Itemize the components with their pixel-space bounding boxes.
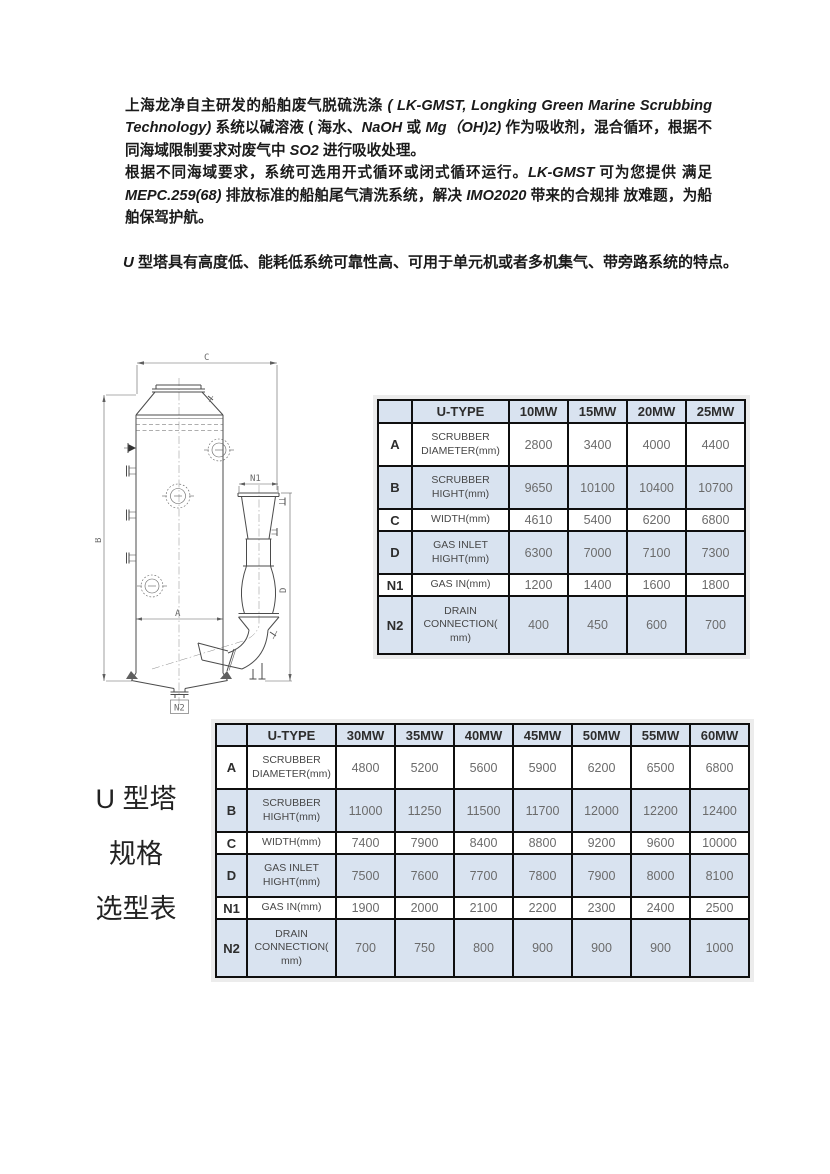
dim-label-a: A — [175, 609, 181, 619]
text-segment: U — [123, 254, 134, 271]
row-label: GAS IN(mm) — [247, 897, 336, 919]
column-header: 35MW — [395, 724, 454, 746]
spec-table-small-wrap: U-TYPE10MW15MW20MW25MWASCRUBBER DIAMETER… — [373, 395, 750, 659]
value-cell: 2000 — [395, 897, 454, 919]
row-key: N1 — [378, 574, 412, 596]
row-label: SCRUBBER HIGHT(mm) — [412, 466, 509, 509]
text-segment: MEPC.259(68) — [125, 188, 222, 204]
scrubber-tower-drawing: C B D N1 A — [95, 338, 340, 718]
dim-label-n2: N2 — [174, 704, 185, 714]
row-key: N2 — [216, 919, 247, 977]
column-header: 10MW — [509, 400, 568, 423]
value-cell: 4610 — [509, 509, 568, 531]
value-cell: 4400 — [686, 423, 745, 466]
value-cell: 11000 — [336, 789, 395, 832]
value-cell: 900 — [631, 919, 690, 977]
side-nozzle-3 — [127, 553, 137, 564]
spec-table-large: U-TYPE30MW35MW40MW45MW50MW55MW60MWASCRUB… — [215, 723, 750, 978]
row-key: N2 — [378, 596, 412, 654]
corner-cell — [216, 724, 247, 746]
value-cell: 900 — [513, 919, 572, 977]
value-cell: 7100 — [627, 531, 686, 574]
value-cell: 600 — [627, 596, 686, 654]
value-cell: 6200 — [627, 509, 686, 531]
row-label: SCRUBBER HIGHT(mm) — [247, 789, 336, 832]
value-cell: 700 — [686, 596, 745, 654]
value-cell: 450 — [568, 596, 627, 654]
value-cell: 800 — [454, 919, 513, 977]
row-key: A — [378, 423, 412, 466]
manhole-upper — [204, 439, 234, 461]
value-cell: 4800 — [336, 746, 395, 789]
value-cell: 8100 — [690, 854, 749, 897]
column-header: 50MW — [572, 724, 631, 746]
value-cell: 1600 — [627, 574, 686, 596]
column-header: 45MW — [513, 724, 572, 746]
row-label: GAS IN(mm) — [412, 574, 509, 596]
value-cell: 12200 — [631, 789, 690, 832]
dim-label-c: C — [204, 353, 209, 363]
text-segment: 进行吸收处理。 — [319, 143, 425, 159]
value-cell: 900 — [572, 919, 631, 977]
value-cell: 7700 — [454, 854, 513, 897]
row-label: SCRUBBER DIAMETER(mm) — [412, 423, 509, 466]
row-label: WIDTH(mm) — [247, 832, 336, 854]
row-key: N1 — [216, 897, 247, 919]
value-cell: 7900 — [572, 854, 631, 897]
paragraph-3: U 型塔具有高度低、能耗低系统可靠性高、可用于单元机或者多机集气、带旁路系统的特… — [123, 252, 763, 274]
value-cell: 2800 — [509, 423, 568, 466]
paragraph-2: 根据不同海域要求，系统可选用开式循环或闭式循环运行。LK-GMST 可为您提供 … — [125, 162, 712, 229]
text-segment: 上海龙净自主研发的船舶废气脱硫洗涤 — [125, 98, 388, 114]
value-cell: 6800 — [686, 509, 745, 531]
row-key: D — [378, 531, 412, 574]
row-label: GAS INLET HIGHT(mm) — [247, 854, 336, 897]
value-cell: 6300 — [509, 531, 568, 574]
row-label: WIDTH(mm) — [412, 509, 509, 531]
text-segment: Mg（OH)2) — [425, 120, 501, 136]
value-cell: 5400 — [568, 509, 627, 531]
value-cell: 10100 — [568, 466, 627, 509]
dim-label-n1: N1 — [250, 474, 261, 484]
spray-nozzle — [128, 444, 136, 452]
text-segment: LK-GMST — [528, 165, 594, 181]
value-cell: 10400 — [627, 466, 686, 509]
value-cell: 7800 — [513, 854, 572, 897]
row-label: SCRUBBER DIAMETER(mm) — [247, 746, 336, 789]
value-cell: 7500 — [336, 854, 395, 897]
value-cell: 7600 — [395, 854, 454, 897]
value-cell: 7000 — [568, 531, 627, 574]
row-key: B — [216, 789, 247, 832]
scrubber-tower-svg: C B D N1 A — [95, 338, 340, 718]
row-key: A — [216, 746, 247, 789]
text-segment: 或 — [402, 120, 425, 136]
value-cell: 10700 — [686, 466, 745, 509]
value-cell: 9600 — [631, 832, 690, 854]
value-cell: 750 — [395, 919, 454, 977]
document-page: 上海龙净自主研发的船舶废气脱硫洗涤 ( LK-GMST, Longking Gr… — [0, 0, 830, 1174]
value-cell: 2500 — [690, 897, 749, 919]
value-cell: 9650 — [509, 466, 568, 509]
column-header: 30MW — [336, 724, 395, 746]
value-cell: 7300 — [686, 531, 745, 574]
column-header: 20MW — [627, 400, 686, 423]
value-cell: 2300 — [572, 897, 631, 919]
value-cell: 10000 — [690, 832, 749, 854]
value-cell: 4000 — [627, 423, 686, 466]
paragraph-1: 上海龙净自主研发的船舶废气脱硫洗涤 ( LK-GMST, Longking Gr… — [125, 95, 712, 162]
column-header: U-TYPE — [412, 400, 509, 423]
text-segment: SO2 — [290, 143, 319, 159]
spec-table-small: U-TYPE10MW15MW20MW25MWASCRUBBER DIAMETER… — [377, 399, 746, 655]
text-segment: NaOH — [362, 120, 403, 136]
column-header: U-TYPE — [247, 724, 336, 746]
corner-cell — [378, 400, 412, 423]
value-cell: 1200 — [509, 574, 568, 596]
manhole-lower — [137, 575, 167, 597]
value-cell: 5600 — [454, 746, 513, 789]
manhole-middle — [162, 484, 194, 508]
value-cell: 11700 — [513, 789, 572, 832]
row-key: D — [216, 854, 247, 897]
row-key: B — [378, 466, 412, 509]
dim-label-d: D — [279, 588, 289, 593]
value-cell: 1000 — [690, 919, 749, 977]
text-segment: 可为您提供 满足 — [594, 165, 712, 181]
row-key: C — [378, 509, 412, 531]
value-cell: 1900 — [336, 897, 395, 919]
value-cell: 9200 — [572, 832, 631, 854]
value-cell: 11250 — [395, 789, 454, 832]
value-cell: 1800 — [686, 574, 745, 596]
row-label: DRAIN CONNECTION( mm) — [412, 596, 509, 654]
column-header: 60MW — [690, 724, 749, 746]
caption-line-3: 选型表 — [80, 882, 192, 937]
value-cell: 2400 — [631, 897, 690, 919]
value-cell: 1400 — [568, 574, 627, 596]
value-cell: 6800 — [690, 746, 749, 789]
row-label: DRAIN CONNECTION( mm) — [247, 919, 336, 977]
side-nozzle-1 — [127, 466, 137, 477]
caption-line-2: 规格 — [80, 827, 192, 882]
value-cell: 3400 — [568, 423, 627, 466]
dim-label-b: B — [95, 538, 104, 543]
value-cell: 400 — [509, 596, 568, 654]
value-cell: 8800 — [513, 832, 572, 854]
value-cell: 12000 — [572, 789, 631, 832]
value-cell: 700 — [336, 919, 395, 977]
text-segment: IMO2020 — [466, 188, 526, 204]
value-cell: 6200 — [572, 746, 631, 789]
column-header: 25MW — [686, 400, 745, 423]
value-cell: 8400 — [454, 832, 513, 854]
row-key: C — [216, 832, 247, 854]
spec-table-large-wrap: U-TYPE30MW35MW40MW45MW50MW55MW60MWASCRUB… — [211, 719, 754, 982]
intro-text-block: 上海龙净自主研发的船舶废气脱硫洗涤 ( LK-GMST, Longking Gr… — [125, 95, 712, 229]
value-cell: 6500 — [631, 746, 690, 789]
column-header: 15MW — [568, 400, 627, 423]
text-segment: 型塔具有高度低、能耗低系统可靠性高、可用于单元机或者多机集气、带旁路系统的特点。 — [134, 254, 738, 271]
value-cell: 11500 — [454, 789, 513, 832]
column-header: 55MW — [631, 724, 690, 746]
side-nozzle-2 — [127, 510, 137, 521]
row-label: GAS INLET HIGHT(mm) — [412, 531, 509, 574]
value-cell: 2200 — [513, 897, 572, 919]
value-cell: 5200 — [395, 746, 454, 789]
value-cell: 5900 — [513, 746, 572, 789]
value-cell: 7400 — [336, 832, 395, 854]
text-segment: 排放标准的船舶尾气清洗系统，解决 — [222, 188, 467, 204]
text-segment: 根据不同海域要求，系统可选用开式循环或闭式循环运行。 — [125, 165, 528, 181]
value-cell: 2100 — [454, 897, 513, 919]
caption-line-1: U 型塔 — [80, 772, 192, 827]
table-caption: U 型塔 规格 选型表 — [80, 772, 192, 937]
value-cell: 7900 — [395, 832, 454, 854]
value-cell: 12400 — [690, 789, 749, 832]
column-header: 40MW — [454, 724, 513, 746]
value-cell: 8000 — [631, 854, 690, 897]
text-segment: 系统以碱溶液 ( 海水、 — [211, 120, 361, 136]
